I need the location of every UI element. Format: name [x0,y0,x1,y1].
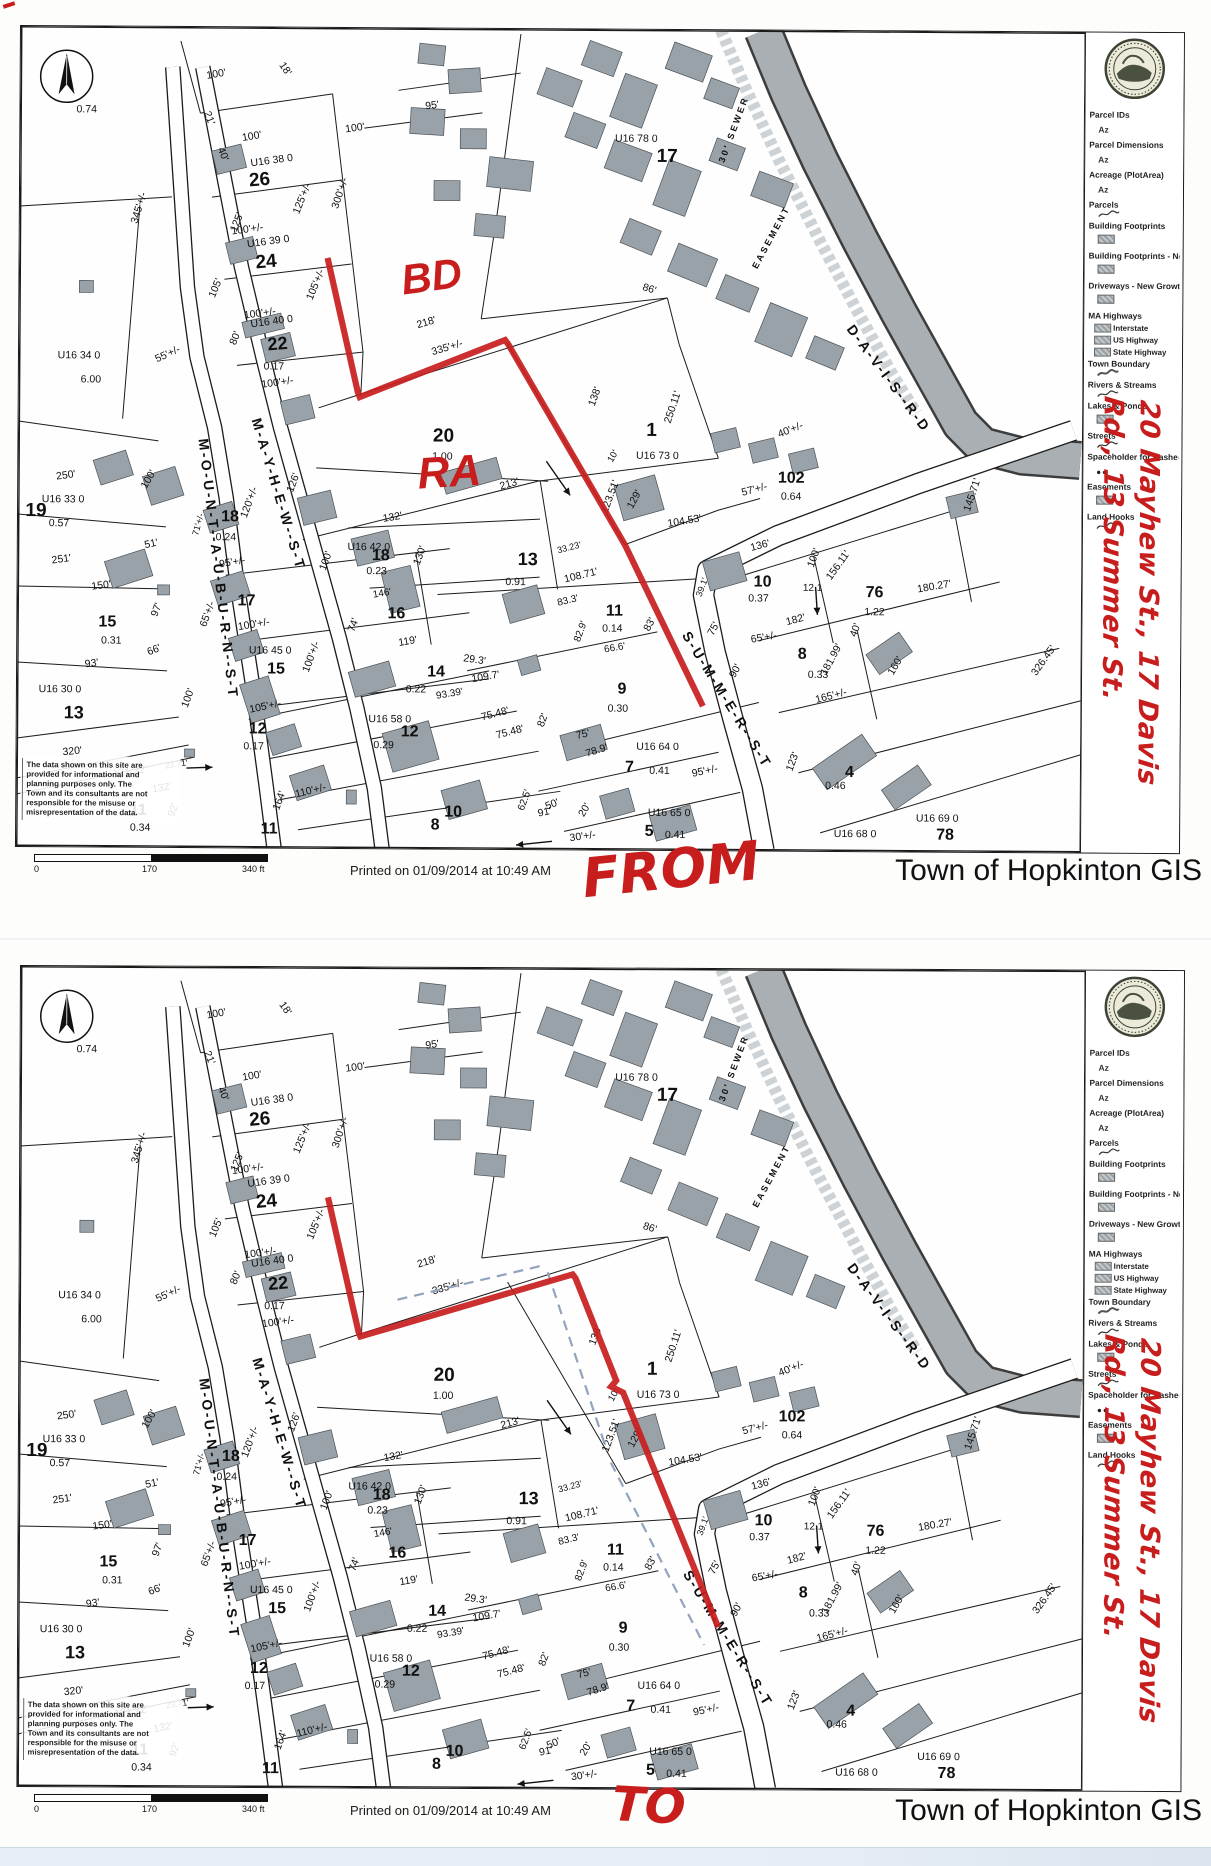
zoning-label-ra: RA [416,446,483,499]
svg-text:Town and its consultants are n: Town and its consultants are not [28,1729,150,1739]
svg-text:13: 13 [64,702,84,722]
scan-line-artifact [0,938,1211,940]
side-note-line2: Rd., 13 Summer St. [1094,1332,1132,1721]
svg-text:10: 10 [755,1512,773,1529]
svg-text:4: 4 [845,764,854,781]
side-note-line2: Rd., 13 Summer St. [1092,394,1130,783]
legend-item: MA Highways [1089,1250,1180,1259]
gis-title: Town of Hopkinton GIS [850,854,1202,888]
svg-text:U16 69 0: U16 69 0 [917,1751,960,1763]
legend-item: Acreage (PlotArea)Az [1089,171,1180,199]
scan-bottom-band [0,1847,1211,1866]
zoning-label-bd: BD [398,249,464,304]
side-note-line1: 20 Mayhew St., 17 Davis [1128,398,1166,787]
svg-text:U16 73 0: U16 73 0 [636,450,679,462]
svg-text:10: 10 [444,804,462,821]
gis-map-to: 100'18'95'21'40'100'U16 38 026125'+/-125… [17,966,1086,1791]
disclaimer-note: The data shown on this site areprovided … [22,1696,182,1763]
svg-text:U16 68 0: U16 68 0 [834,828,877,840]
scanned-page: 100'18'95'21'40'100'U16 38 026125'+/-125… [0,0,1211,1866]
svg-text:9: 9 [617,681,626,698]
svg-text:24: 24 [255,251,278,274]
svg-text:0.14: 0.14 [602,623,623,635]
svg-text:320': 320' [62,744,83,758]
svg-text:17: 17 [657,146,678,167]
svg-text:12.1: 12.1 [804,1521,824,1532]
legend-item: Interstate [1094,324,1179,334]
svg-text:8: 8 [799,1584,808,1601]
map-footer-to: 0 170 340 ft Printed on 01/09/2014 at 10… [20,1786,1183,1856]
svg-text:U16 64 0: U16 64 0 [638,1680,681,1692]
legend-item: Building Footprints - New Gr [1088,252,1179,280]
svg-text:1: 1 [647,1359,658,1380]
red-scan-mark [3,1,16,9]
svg-text:0.41: 0.41 [651,1704,672,1716]
svg-text:0.64: 0.64 [782,1429,803,1441]
svg-text:U16 69 0: U16 69 0 [916,812,959,824]
svg-text:17: 17 [657,1085,678,1106]
svg-text:Town and its consultants are n: Town and its consultants are not [26,789,148,799]
legend-item: Building Footprints [1089,1160,1180,1187]
svg-text:17: 17 [239,1532,257,1549]
svg-text:U16 30 0: U16 30 0 [39,683,82,695]
legend-item: Parcels [1089,201,1180,220]
svg-text:7: 7 [625,759,634,776]
legend-item: Driveways - New Growth [1089,1220,1180,1247]
legend-item: US Highway [1095,1274,1180,1283]
svg-text:14: 14 [427,663,445,680]
svg-text:15: 15 [268,1600,286,1617]
svg-text:7: 7 [626,1698,635,1715]
svg-text:responsible for the misuse or: responsible for the misuse or [28,1738,137,1747]
svg-text:17: 17 [238,592,256,609]
legend-item: Parcels [1089,1139,1180,1157]
gis-map-from: 100'18'95'21'40'100'U16 38 026125'+/-125… [16,26,1086,852]
compass-value: 0.74 [77,1043,98,1055]
svg-text:provided for informational and: provided for informational and [28,1710,141,1719]
svg-text:8: 8 [431,817,440,834]
legend-item: US Highway [1094,336,1179,346]
svg-text:5: 5 [645,823,654,840]
scale-bar: 0 170 340 ft [34,854,274,878]
legend-item: Interstate [1095,1262,1180,1271]
svg-text:13: 13 [519,1488,539,1508]
svg-text:0.23: 0.23 [367,1505,388,1517]
svg-text:1.00: 1.00 [433,1390,454,1402]
svg-text:6.00: 6.00 [81,1313,102,1325]
svg-text:0.41: 0.41 [649,765,670,777]
svg-text:0.29: 0.29 [373,739,394,751]
svg-text:U16 45 0: U16 45 0 [250,1584,293,1596]
svg-text:320': 320' [63,1684,84,1698]
svg-text:8: 8 [798,646,807,663]
scale-tick-170: 170 [142,1804,157,1814]
svg-text:0.57: 0.57 [50,1457,71,1469]
handwritten-address-note: 20 Mayhew St., 17 Davis Rd., 13 Summer S… [1094,1332,1168,1725]
hopkinton-town-seal-icon [1089,976,1181,1043]
legend-item: Parcel DimensionsAz [1089,1079,1180,1106]
scale-bar-graphic [34,854,268,862]
svg-text:13: 13 [65,1642,85,1662]
svg-text:0.30: 0.30 [608,703,629,715]
to-annotation: TO [611,1776,687,1836]
svg-text:76: 76 [866,584,884,601]
svg-text:U16 68 0: U16 68 0 [835,1767,878,1779]
svg-text:planning purposes only. The: planning purposes only. The [26,779,132,789]
svg-text:93': 93' [85,1596,100,1610]
svg-text:0.46: 0.46 [825,780,846,792]
svg-text:20: 20 [434,1365,455,1386]
svg-text:0.91: 0.91 [506,1515,527,1527]
svg-text:The data shown on this site ar: The data shown on this site are [28,1700,145,1710]
gis-title: Town of Hopkinton GIS [850,1794,1202,1828]
map-panel-to: 100'18'95'21'40'100'U16 38 026125'+/-125… [16,965,1185,1792]
svg-text:18: 18 [222,1448,240,1465]
svg-text:13: 13 [518,549,538,569]
legend-item: State Highway [1095,1286,1180,1295]
svg-text:0.23: 0.23 [366,565,387,577]
svg-text:22: 22 [267,333,289,355]
svg-text:12: 12 [250,1660,268,1677]
svg-text:12: 12 [402,1663,420,1680]
svg-text:U16 30 0: U16 30 0 [40,1623,83,1635]
svg-text:0.37: 0.37 [749,1531,770,1543]
svg-text:1.22: 1.22 [864,606,885,618]
svg-text:16: 16 [387,605,405,622]
svg-text:0.46: 0.46 [826,1719,847,1731]
svg-text:0.64: 0.64 [781,491,802,503]
svg-text:15: 15 [267,661,285,678]
map-panel-from: 100'18'95'21'40'100'U16 38 026125'+/-125… [15,25,1185,854]
svg-text:95': 95' [425,1038,440,1052]
printed-timestamp: Printed on 01/09/2014 at 10:49 AM [350,863,551,878]
svg-text:11: 11 [607,1542,624,1559]
svg-text:20: 20 [433,426,454,447]
svg-text:6.00: 6.00 [81,373,102,385]
svg-text:12.1: 12.1 [803,583,823,594]
svg-text:U16 58 0: U16 58 0 [368,713,411,725]
scale-tick-340: 340 ft [242,864,265,874]
svg-text:93': 93' [84,657,99,671]
svg-text:11: 11 [606,603,623,620]
legend-item: Parcel IDsAz [1090,1049,1181,1076]
svg-text:12: 12 [249,720,267,737]
svg-text:0.31: 0.31 [101,635,122,647]
scale-tick-0: 0 [34,864,39,874]
svg-text:U16 78 0: U16 78 0 [615,1072,658,1084]
svg-text:misrepresentation of the data.: misrepresentation of the data. [28,1748,139,1757]
side-note-line1: 20 Mayhew St., 17 Davis [1130,1336,1168,1725]
svg-text:102: 102 [778,470,805,487]
svg-text:8: 8 [432,1756,441,1773]
svg-text:78: 78 [936,827,954,844]
svg-text:18: 18 [221,508,239,525]
svg-text:5: 5 [646,1762,655,1779]
svg-text:1.22: 1.22 [865,1545,886,1557]
legend-item: MA Highways [1088,312,1179,322]
svg-text:11: 11 [262,1760,279,1777]
svg-text:14: 14 [428,1603,446,1620]
scale-tick-170: 170 [142,864,157,874]
legend-item: Parcel DimensionsAz [1089,141,1180,169]
svg-text:0.30: 0.30 [609,1642,630,1654]
svg-text:U16 33 0: U16 33 0 [42,493,85,505]
svg-text:22: 22 [267,1272,289,1294]
svg-text:9: 9 [619,1620,628,1637]
svg-text:4: 4 [846,1703,855,1720]
svg-text:misrepresentation of the data.: misrepresentation of the data. [26,808,137,818]
svg-text:0.91: 0.91 [505,576,526,588]
svg-text:responsible for the misuse or: responsible for the misuse or [26,798,135,808]
svg-text:0.34: 0.34 [130,822,151,834]
scale-bar: 0 170 340 ft [34,1794,274,1818]
legend-item: Acreage (PlotArea)Az [1089,1109,1180,1136]
legend-item: Town Boundary [1088,1298,1179,1316]
svg-text:15: 15 [99,1553,117,1570]
svg-text:78: 78 [938,1765,956,1782]
svg-text:0.17: 0.17 [264,1300,285,1312]
svg-text:U16 34 0: U16 34 0 [58,1289,101,1301]
compass-value: 0.74 [76,103,97,115]
handwritten-address-note: 20 Mayhew St., 17 Davis Rd., 13 Summer S… [1092,394,1166,787]
legend-item: Building Footprints [1089,222,1180,250]
scale-bar-graphic [34,1794,268,1802]
svg-text:0.29: 0.29 [375,1679,396,1691]
legend-item: Building Footprints - New Gr [1089,1190,1180,1217]
map-footer-from: 0 170 340 ft Printed on 01/09/2014 at 10… [20,846,1183,916]
svg-text:0.57: 0.57 [49,517,70,529]
svg-text:0.17: 0.17 [245,1680,266,1692]
svg-text:U16 33 0: U16 33 0 [43,1433,86,1445]
hopkinton-town-seal-icon [1089,38,1181,106]
svg-text:95': 95' [425,99,440,113]
svg-text:10: 10 [446,1743,464,1760]
svg-text:The data shown on this site ar: The data shown on this site are [26,760,143,770]
svg-text:26: 26 [248,1108,271,1131]
svg-text:0.17: 0.17 [243,740,264,752]
svg-text:0.14: 0.14 [603,1562,624,1574]
svg-text:18: 18 [372,547,390,564]
svg-text:18: 18 [373,1487,391,1504]
svg-text:10: 10 [754,573,772,590]
svg-text:11: 11 [261,820,278,837]
svg-text:U16 58 0: U16 58 0 [370,1653,413,1665]
svg-text:0.17: 0.17 [264,360,285,372]
svg-text:12: 12 [401,723,419,740]
svg-text:planning purposes only. The: planning purposes only. The [28,1719,134,1728]
svg-text:102: 102 [779,1408,806,1425]
svg-text:16: 16 [389,1545,407,1562]
svg-text:26: 26 [248,169,271,192]
svg-text:1: 1 [646,420,657,441]
svg-text:76: 76 [867,1523,885,1540]
svg-text:U16 64 0: U16 64 0 [636,741,679,753]
scale-tick-340: 340 ft [242,1804,265,1814]
svg-text:U16 45 0: U16 45 0 [249,644,292,656]
printed-timestamp: Printed on 01/09/2014 at 10:49 AM [350,1803,551,1818]
svg-text:24: 24 [255,1190,278,1213]
svg-text:U16 34 0: U16 34 0 [58,349,101,361]
svg-text:0.22: 0.22 [407,1623,428,1635]
svg-text:U16 65 0: U16 65 0 [649,1746,692,1758]
legend-item: State Highway [1094,348,1179,358]
scale-tick-0: 0 [34,1804,39,1814]
svg-text:U16 78 0: U16 78 0 [615,133,658,145]
disclaimer-note: The data shown on this site areprovided … [20,756,180,823]
svg-text:U16 65 0: U16 65 0 [648,807,691,819]
legend-item: Town Boundary [1088,360,1179,379]
svg-text:0.34: 0.34 [131,1761,152,1773]
legend-item: Parcel IDsAz [1089,111,1180,139]
svg-text:15: 15 [98,613,116,630]
svg-text:0.22: 0.22 [406,683,427,695]
svg-text:U16 73 0: U16 73 0 [637,1389,680,1401]
legend-item: Driveways - New Growth [1088,282,1179,310]
svg-text:0.31: 0.31 [102,1574,123,1586]
svg-text:provided for informational and: provided for informational and [26,770,139,780]
svg-text:0.37: 0.37 [748,592,769,604]
